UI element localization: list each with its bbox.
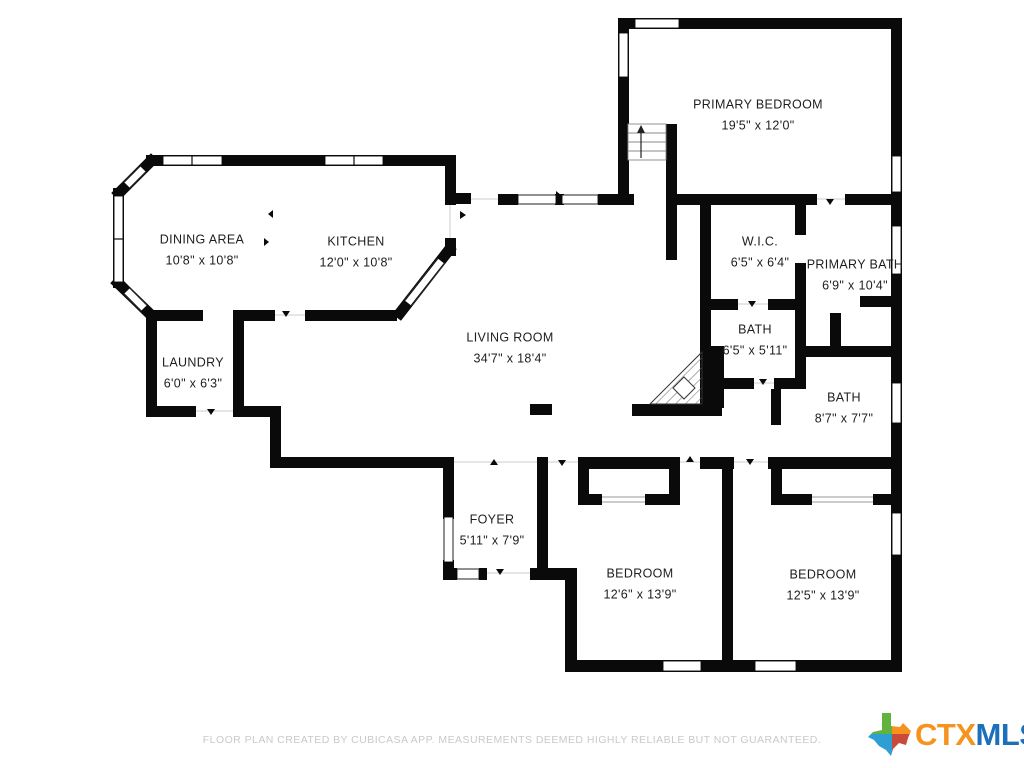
room-label-primary-bath: PRIMARY BATH 6'9" x 10'4" — [807, 254, 904, 295]
floor-plan-page: PRIMARY BEDROOM 19'5" x 12'0" DINING ARE… — [0, 0, 1024, 768]
room-name: BEDROOM — [786, 564, 859, 585]
room-label-laundry: LAUNDRY 6'0" x 6'3" — [162, 352, 224, 393]
room-name: PRIMARY BATH — [807, 254, 904, 275]
room-dims: 19'5" x 12'0" — [693, 115, 823, 136]
room-dims: 5'11" x 7'9" — [460, 530, 525, 551]
room-dims: 12'6" x 13'9" — [603, 584, 676, 605]
room-name: DINING AREA — [160, 229, 244, 250]
room-dims: 6'5" x 6'4" — [731, 252, 790, 273]
texas-icon — [866, 712, 912, 757]
logo-text: CTXMLS — [915, 719, 1024, 750]
room-dims: 12'5" x 13'9" — [786, 585, 859, 606]
room-label-living-room: LIVING ROOM 34'7" x 18'4" — [466, 327, 553, 368]
room-label-kitchen: KITCHEN 12'0" x 10'8" — [319, 231, 392, 272]
room-dims: 8'7" x 7'7" — [815, 408, 874, 429]
logo-mls-text: MLS — [976, 717, 1024, 752]
room-name: LIVING ROOM — [466, 327, 553, 348]
room-label-wic: W.I.C. 6'5" x 6'4" — [731, 231, 790, 272]
logo-ctx-text: CTX — [915, 717, 976, 752]
room-label-dining-area: DINING AREA 10'8" x 10'8" — [160, 229, 244, 270]
room-dims: 34'7" x 18'4" — [466, 348, 553, 369]
room-label-foyer: FOYER 5'11" x 7'9" — [460, 509, 525, 550]
room-label-bath-hall: BATH 6'5" x 5'11" — [723, 319, 788, 360]
room-dims: 6'0" x 6'3" — [162, 373, 224, 394]
fireplace — [650, 352, 702, 404]
room-name: PRIMARY BEDROOM — [693, 94, 823, 115]
closet-doors — [602, 497, 873, 502]
room-name: LAUNDRY — [162, 352, 224, 373]
room-name: FOYER — [460, 509, 525, 530]
floor-plan-drawing — [0, 0, 1024, 768]
room-dims: 6'5" x 5'11" — [723, 340, 788, 361]
room-label-bath-2: BATH 8'7" x 7'7" — [815, 387, 874, 428]
room-name: KITCHEN — [319, 231, 392, 252]
staircase — [628, 124, 666, 160]
room-dims: 6'9" x 10'4" — [807, 275, 904, 296]
ctxmls-logo: CTXMLS — [866, 708, 1024, 760]
room-dims: 10'8" x 10'8" — [160, 250, 244, 271]
room-label-primary-bedroom: PRIMARY BEDROOM 19'5" x 12'0" — [693, 94, 823, 135]
room-label-bedroom-1: BEDROOM 12'6" x 13'9" — [603, 563, 676, 604]
room-name: BATH — [815, 387, 874, 408]
room-label-bedroom-2: BEDROOM 12'5" x 13'9" — [786, 564, 859, 605]
room-name: W.I.C. — [731, 231, 790, 252]
room-name: BATH — [723, 319, 788, 340]
room-name: BEDROOM — [603, 563, 676, 584]
room-dims: 12'0" x 10'8" — [319, 252, 392, 273]
